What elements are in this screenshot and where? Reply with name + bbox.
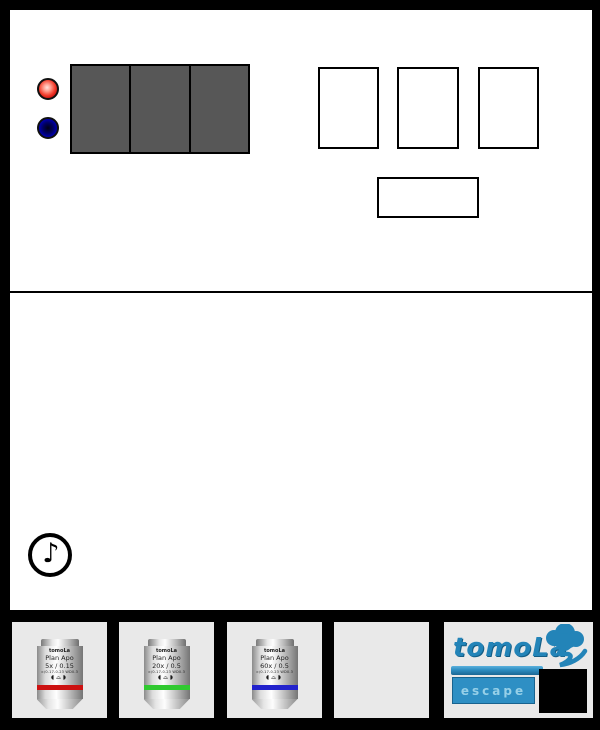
objective-magnification: 5x / 0.15 — [37, 662, 83, 670]
device-ui: ♪ tomoLa Plan Apo 5x / 0.15 ∞/0.17-0.23 … — [0, 0, 600, 730]
segmented-display — [70, 64, 250, 154]
objective-label: tomoLa Plan Apo 20x / 0.5 ∞/0.17-0.23 WD… — [144, 646, 190, 685]
objective-5x: tomoLa Plan Apo 5x / 0.15 ∞/0.17-0.23 WD… — [37, 639, 83, 709]
objective-brand: tomoLa — [37, 646, 83, 654]
selector-box-2[interactable] — [397, 67, 459, 149]
display-segment — [191, 66, 248, 152]
music-note-icon: ♪ — [42, 540, 59, 567]
wide-selector-box[interactable] — [377, 177, 479, 218]
objective-series: Plan Apo — [144, 654, 190, 662]
tree-logo-icon — [540, 624, 588, 674]
logo-underline-bar — [451, 666, 543, 675]
objective-lower-body — [37, 690, 83, 699]
objective-brand: tomoLa — [144, 646, 190, 654]
black-square-overlay — [539, 669, 587, 713]
objective-tip — [144, 699, 190, 709]
objective-lower-body — [252, 690, 298, 699]
objective-series: Plan Apo — [37, 654, 83, 662]
objective-series: Plan Apo — [252, 654, 298, 662]
objective-slot-20x[interactable]: tomoLa Plan Apo 20x / 0.5 ∞/0.17-0.23 WD… — [119, 622, 214, 718]
objective-magnification: 20x / 0.5 — [144, 662, 190, 670]
objective-60x: tomoLa Plan Apo 60x / 0.5 ∞/0.17-0.23 WD… — [252, 639, 298, 709]
objective-cap — [41, 639, 79, 646]
objective-slot-5x[interactable]: tomoLa Plan Apo 5x / 0.15 ∞/0.17-0.23 WD… — [12, 622, 107, 718]
main-panel: ♪ — [10, 10, 592, 610]
display-segment — [72, 66, 131, 152]
objective-label: tomoLa Plan Apo 60x / 0.5 ∞/0.17-0.23 WD… — [252, 646, 298, 685]
panel-divider — [10, 291, 592, 293]
objective-symbols: ◖⌓◗ — [144, 674, 190, 681]
escape-button-label: escape — [461, 684, 526, 698]
objective-label: tomoLa Plan Apo 5x / 0.15 ∞/0.17-0.23 WD… — [37, 646, 83, 685]
blue-led-indicator — [37, 117, 59, 139]
objective-tip — [252, 699, 298, 709]
escape-button[interactable]: escape — [452, 677, 535, 704]
objective-symbols: ◖⌓◗ — [252, 674, 298, 681]
objective-cap — [256, 639, 294, 646]
objective-brand: tomoLa — [252, 646, 298, 654]
selector-box-3[interactable] — [478, 67, 539, 149]
objective-cap — [148, 639, 186, 646]
objective-20x: tomoLa Plan Apo 20x / 0.5 ∞/0.17-0.23 WD… — [144, 639, 190, 709]
objective-symbols: ◖⌓◗ — [37, 674, 83, 681]
objective-magnification: 60x / 0.5 — [252, 662, 298, 670]
sound-toggle-button[interactable]: ♪ — [28, 533, 72, 577]
objective-tip — [37, 699, 83, 709]
objective-lower-body — [144, 690, 190, 699]
red-led-indicator — [37, 78, 59, 100]
display-segment — [131, 66, 190, 152]
selector-box-1[interactable] — [318, 67, 379, 149]
objective-slot-60x[interactable]: tomoLa Plan Apo 60x / 0.5 ∞/0.17-0.23 WD… — [227, 622, 322, 718]
logo-panel: tomoLa escape — [444, 622, 593, 718]
objective-slot-empty[interactable] — [334, 622, 429, 718]
